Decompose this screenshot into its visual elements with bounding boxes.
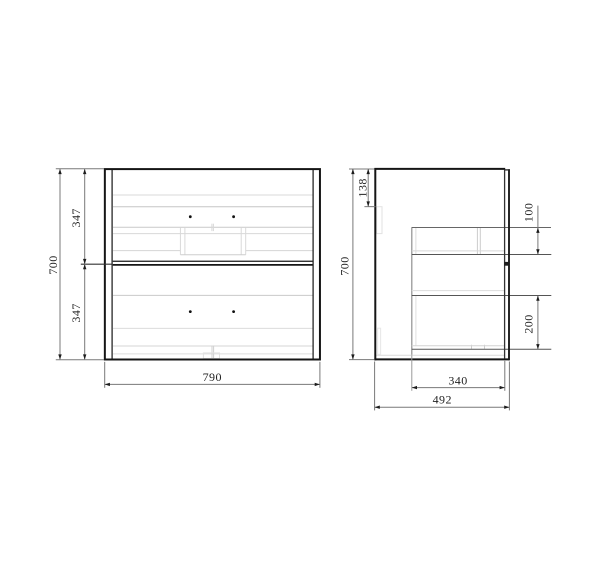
svg-text:200: 200 xyxy=(521,314,535,333)
svg-text:100: 100 xyxy=(521,203,535,222)
svg-text:138: 138 xyxy=(356,178,370,197)
svg-text:790: 790 xyxy=(203,370,222,384)
svg-text:347: 347 xyxy=(69,208,83,227)
svg-text:492: 492 xyxy=(433,393,452,407)
svg-text:700: 700 xyxy=(337,256,351,275)
svg-text:347: 347 xyxy=(69,303,83,322)
svg-text:340: 340 xyxy=(448,373,467,387)
svg-text:700: 700 xyxy=(46,255,60,274)
